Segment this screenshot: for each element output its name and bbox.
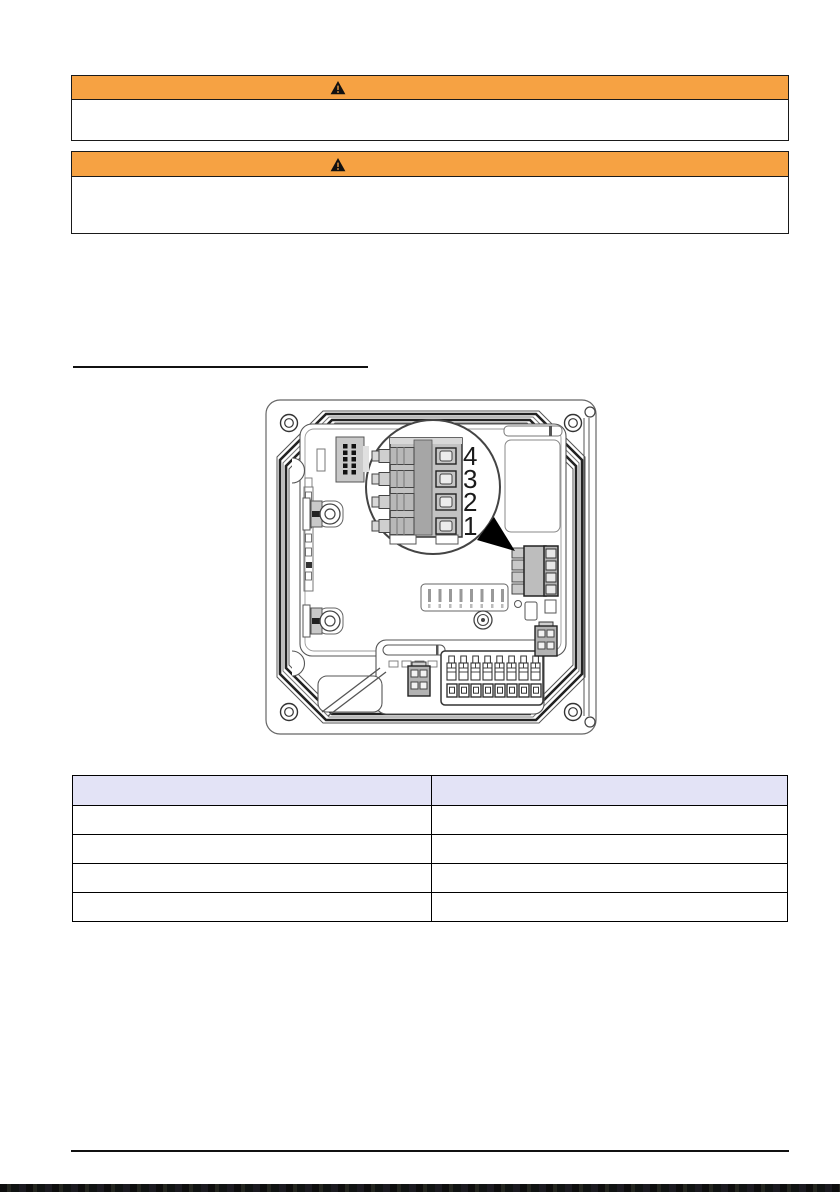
table-header-row [73, 776, 788, 806]
table-row [73, 835, 788, 864]
table-cell [73, 806, 432, 835]
warning-banner-2 [71, 151, 789, 234]
wiring-table [72, 775, 788, 922]
table-cell [432, 893, 788, 922]
table-cell [73, 835, 432, 864]
controller-wiring-figure: 4 3 2 1 [258, 392, 606, 744]
callout-number-1: 1 [463, 511, 477, 541]
bottom-terminal-strip [441, 651, 543, 705]
warning-triangle-icon [330, 157, 346, 172]
table-row [73, 864, 788, 893]
warning-banner-2-header [72, 152, 788, 177]
warning-triangle-icon [330, 80, 346, 95]
page-bottom-band [0, 1184, 840, 1192]
document-page: 4 3 2 1 [0, 0, 840, 1192]
table-row [73, 893, 788, 922]
warning-banner-1 [71, 75, 789, 141]
warning-banner-2-body [72, 177, 788, 233]
table-cell [432, 806, 788, 835]
four-pin-connector-left [408, 662, 430, 696]
table-cell [432, 864, 788, 893]
controller-figure-svg: 4 3 2 1 [258, 392, 606, 744]
table-cell [73, 864, 432, 893]
underlined-reference [73, 353, 368, 368]
table-header-col2 [432, 776, 788, 806]
footer-rule [71, 1150, 789, 1152]
table-cell [432, 835, 788, 864]
four-pin-connector-right [535, 622, 557, 656]
table-cell [73, 893, 432, 922]
top-right-plate [504, 426, 562, 532]
table-header-col1 [73, 776, 432, 806]
table-row [73, 806, 788, 835]
warning-banner-1-header [72, 76, 788, 100]
warning-banner-1-body [72, 100, 788, 140]
